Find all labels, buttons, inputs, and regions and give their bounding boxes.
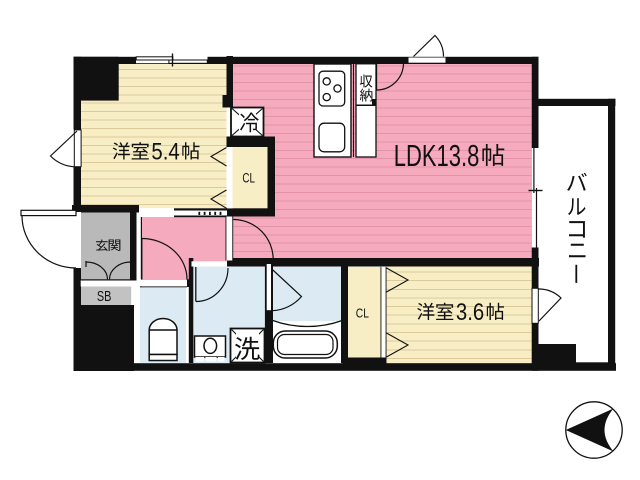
svg-text:CL: CL (356, 306, 369, 321)
svg-text:CL: CL (242, 170, 255, 185)
svg-text:LDK13.8: LDK13.8 (394, 139, 480, 173)
svg-text:5.4: 5.4 (151, 139, 179, 166)
svg-text:SB: SB (97, 289, 112, 305)
svg-text:3.6: 3.6 (456, 299, 484, 326)
